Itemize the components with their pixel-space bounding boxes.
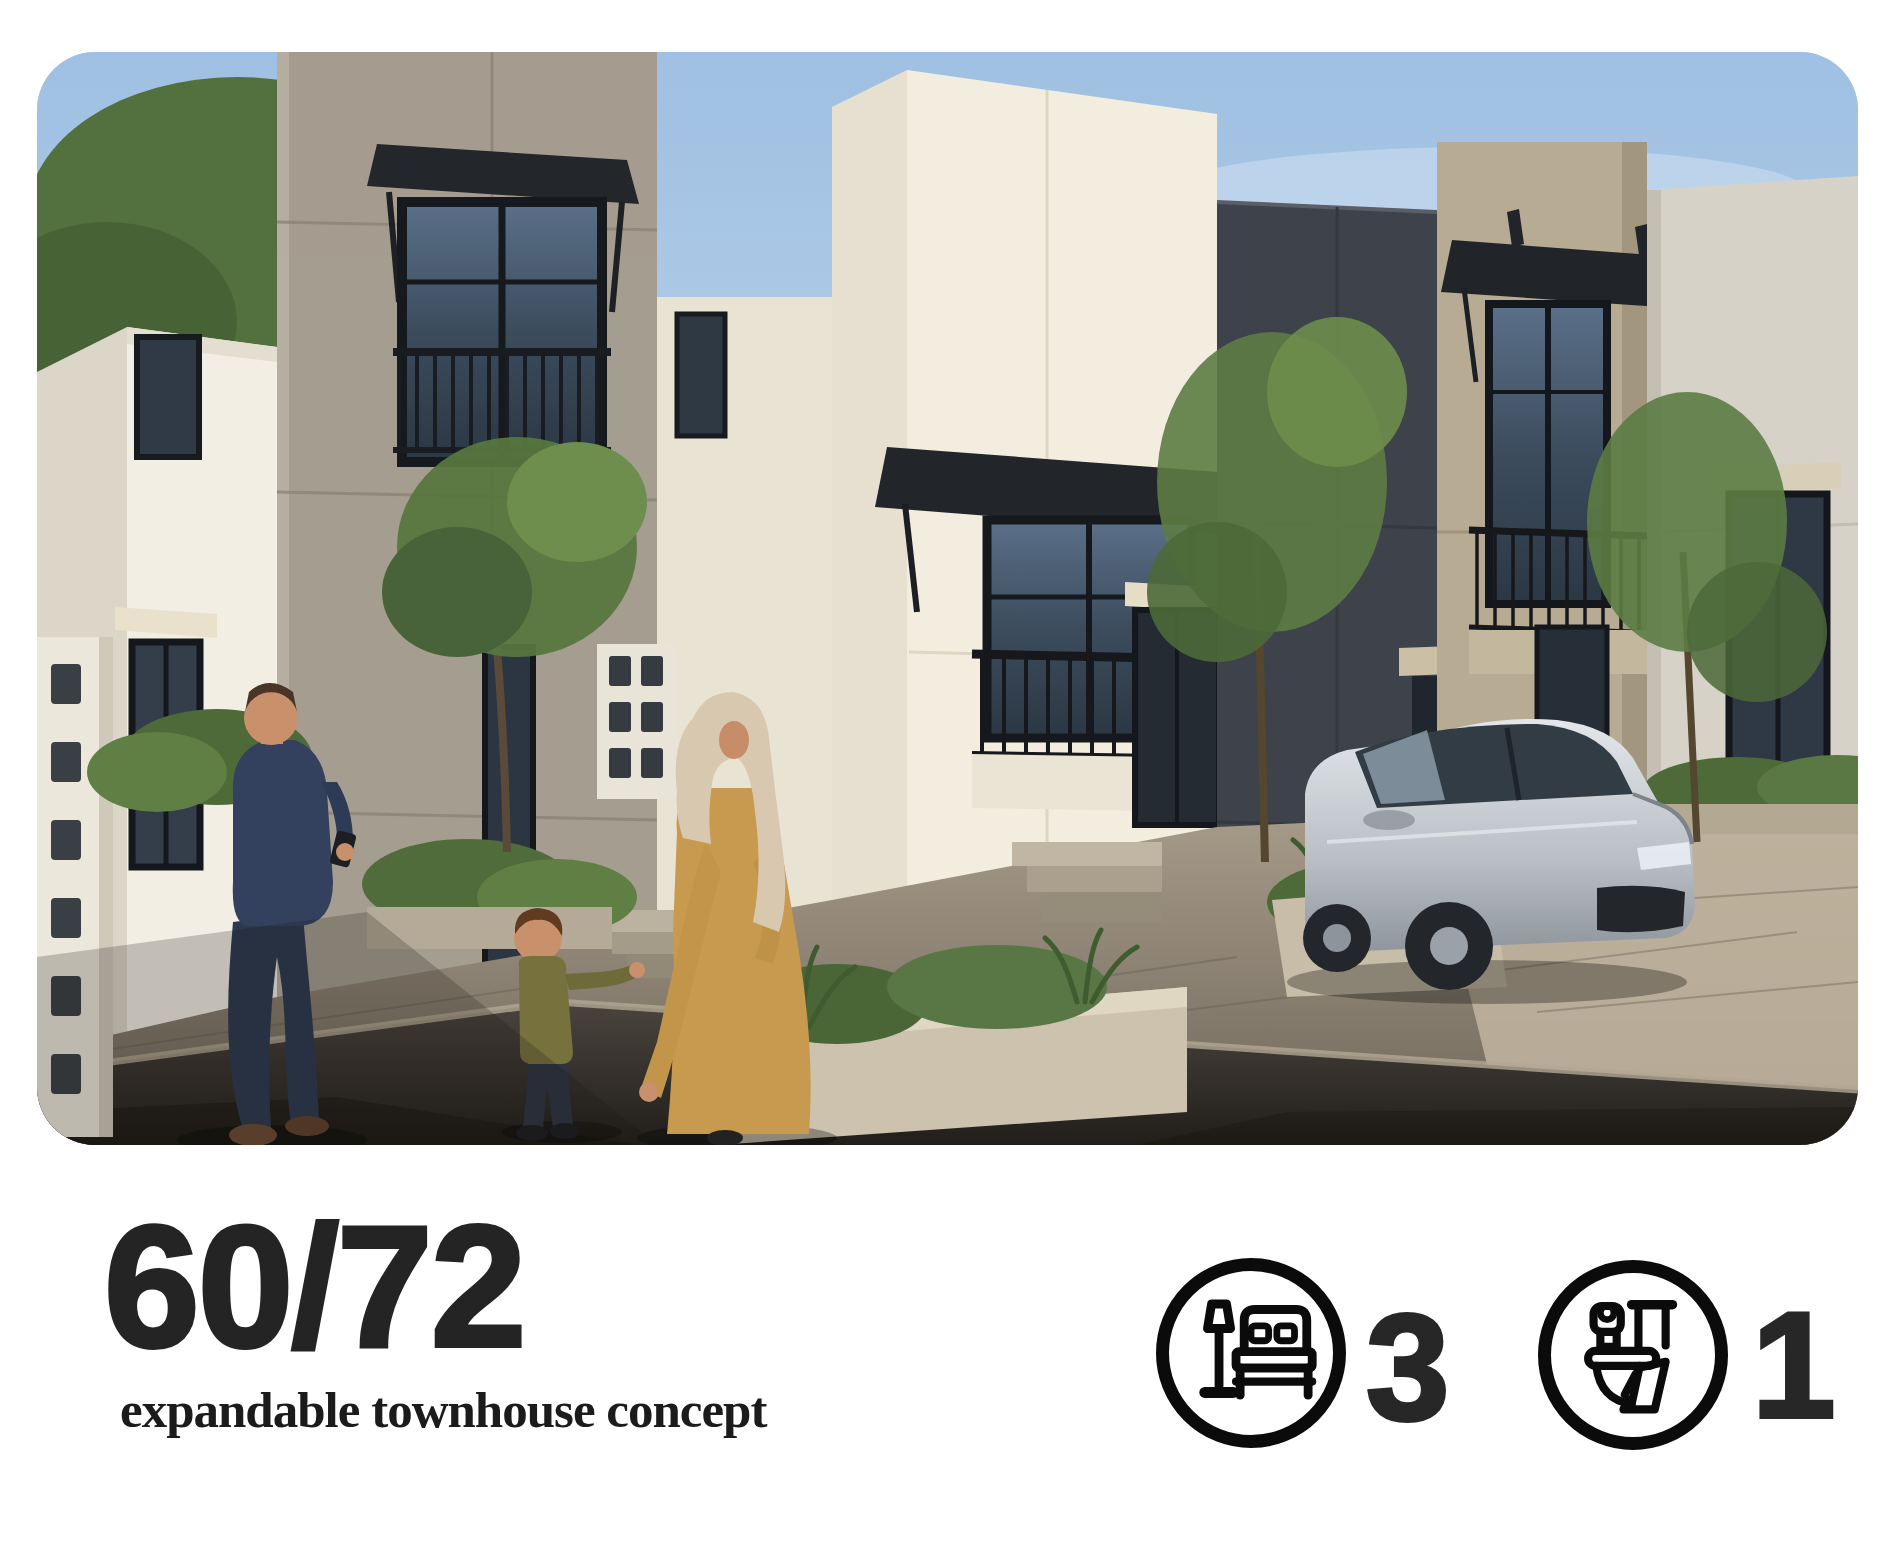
breeze-block-wall-center (597, 644, 677, 799)
page-subtitle: expandable townhouse concept (120, 1380, 766, 1441)
bedrooms-count: 3 (1366, 1292, 1449, 1442)
listing-card-page: 60/72 expandable townhouse concept 3 (0, 0, 1895, 1545)
bed-icon (1156, 1258, 1346, 1448)
bed-icon-glyph (1183, 1285, 1319, 1421)
townhouse-photo (37, 52, 1858, 1145)
page-title: 60/72 (104, 1200, 524, 1372)
townhouse-photo-illustration (37, 52, 1858, 1145)
bathrooms-count: 1 (1752, 1290, 1835, 1440)
toilet-icon (1538, 1260, 1728, 1450)
toilet-icon-glyph (1565, 1287, 1701, 1423)
